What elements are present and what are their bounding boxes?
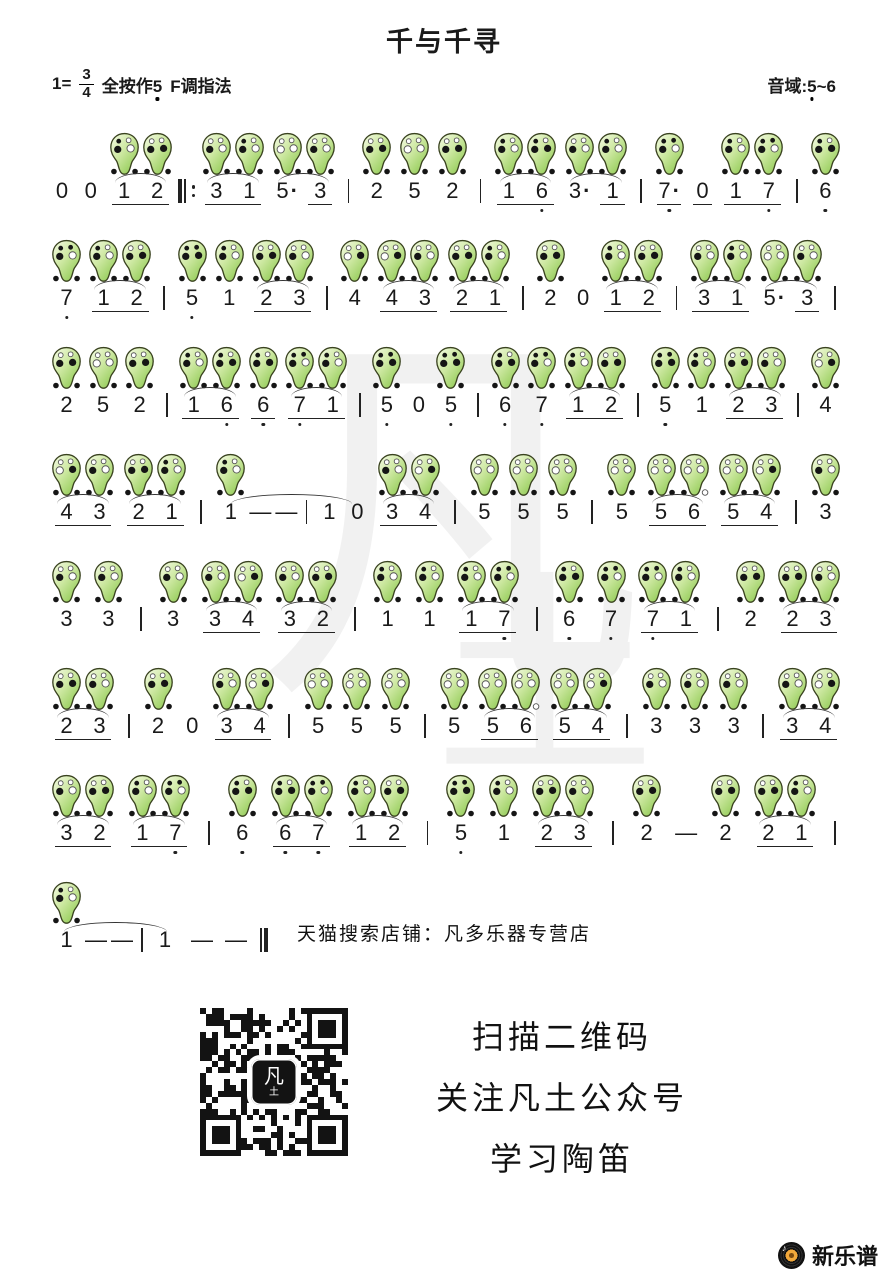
 — [260, 928, 262, 952]
ocarina-icon — [776, 667, 809, 712]
note: 3 — [408, 234, 441, 312]
note: 7· — [653, 127, 686, 205]
ocarina-icon — [126, 774, 159, 819]
barline — [135, 876, 149, 954]
barline — [194, 448, 208, 526]
 — [264, 928, 268, 952]
 — [166, 393, 168, 417]
barline — [669, 234, 683, 312]
ocarina-icon — [50, 239, 83, 284]
note: 5 — [468, 448, 501, 526]
underline — [182, 418, 239, 419]
note-group: 23 — [722, 341, 788, 419]
rest: 0 — [180, 662, 204, 740]
 — [669, 557, 702, 605]
 — [348, 605, 362, 633]
 — [157, 284, 171, 312]
underline — [349, 846, 406, 847]
note: 2 — [123, 341, 156, 419]
ocarina-icon — [563, 132, 596, 177]
qr-code: 凡 土 — [200, 1008, 348, 1156]
ocarina-icon — [378, 774, 411, 819]
note: 7 — [525, 341, 558, 419]
score-row: 333343211176771223 — [50, 555, 842, 633]
score-row: 0012315·3252163·17·0176 — [50, 127, 842, 205]
ocarina-icon — [476, 667, 509, 712]
 — [785, 771, 818, 819]
note: 2 — [250, 234, 283, 312]
note: 3 — [200, 127, 233, 205]
 — [507, 450, 540, 498]
 — [525, 129, 558, 177]
ocarina-icon — [534, 239, 567, 284]
barline — [789, 448, 803, 526]
note-number: 1 — [213, 284, 245, 312]
note: 2 — [632, 234, 665, 312]
 — [525, 343, 558, 391]
underline — [288, 418, 345, 419]
note: 5 — [340, 662, 373, 740]
barline — [631, 341, 645, 419]
note-number: 3 — [92, 605, 124, 633]
 — [304, 129, 337, 177]
 — [283, 236, 316, 284]
note: 6 — [210, 341, 243, 419]
ocarina-icon — [785, 774, 818, 819]
 — [199, 557, 232, 605]
ocarina-icon — [87, 239, 120, 284]
 — [834, 286, 836, 310]
 — [271, 129, 304, 177]
 — [427, 821, 429, 845]
 — [163, 286, 165, 310]
ocarina-icon — [487, 774, 520, 819]
note: 4 — [581, 662, 614, 740]
barline — [348, 555, 362, 633]
ocarina-icon — [269, 774, 302, 819]
 — [50, 878, 83, 926]
ocarina-icon — [213, 239, 246, 284]
note: 1 — [719, 127, 752, 205]
 — [226, 771, 259, 819]
 — [468, 450, 501, 498]
barline — [157, 234, 171, 312]
barline — [606, 769, 620, 847]
note-number: 5 — [445, 819, 477, 847]
note-group: 31 — [200, 127, 266, 205]
qr-section: 凡 土 扫描二维码 关注凡土公众号 学习陶笛 — [0, 1008, 888, 1180]
note-number: 5 — [547, 498, 579, 526]
note: 2 — [360, 127, 393, 205]
qr-center-logo: 凡 土 — [251, 1059, 297, 1105]
note-number: 5 — [302, 712, 334, 740]
 — [797, 393, 799, 417]
note: 4 — [338, 234, 371, 312]
time-signature: 34 — [79, 67, 93, 101]
 — [421, 819, 435, 847]
note: 2 — [378, 769, 411, 847]
ocarina-icon — [468, 453, 501, 498]
note: 2 — [534, 234, 567, 312]
barline — [634, 127, 648, 205]
 — [834, 821, 836, 845]
ocarina-icon — [581, 667, 614, 712]
barline — [421, 769, 435, 847]
note-group: 23 — [530, 769, 596, 847]
 — [163, 286, 165, 310]
ocarina-icon — [142, 667, 175, 712]
note-group: 12 — [599, 234, 665, 312]
note: 2 — [776, 555, 809, 633]
underline — [649, 525, 706, 526]
ocarina-icon — [525, 132, 558, 177]
note: 1 — [345, 769, 378, 847]
underline — [215, 739, 272, 740]
barline — [711, 555, 725, 633]
note: 1 — [149, 876, 181, 954]
note-number: 3 — [679, 712, 711, 740]
 — [758, 236, 791, 284]
note-group: 3·1 — [563, 127, 629, 205]
ocarina-icon — [595, 346, 628, 391]
 — [762, 714, 764, 738]
barline — [134, 555, 148, 633]
ocarina-icon — [548, 667, 581, 712]
underline — [112, 204, 169, 205]
 — [208, 821, 210, 845]
barline — [418, 662, 432, 740]
note: 2 — [142, 662, 175, 740]
note-number: 6 — [809, 177, 841, 205]
 — [436, 129, 469, 177]
 — [123, 343, 156, 391]
note-group: 43 — [50, 448, 116, 526]
note: 5 — [444, 769, 477, 847]
 — [585, 498, 599, 526]
rest: 0 — [79, 127, 103, 205]
 — [796, 179, 798, 203]
 — [719, 129, 752, 177]
 — [326, 286, 328, 310]
barline — [516, 234, 530, 312]
 — [752, 771, 785, 819]
ocarina-icon — [492, 132, 525, 177]
ocarina-icon — [636, 560, 669, 605]
 — [448, 498, 462, 526]
underline — [273, 846, 330, 847]
 — [359, 393, 361, 417]
note: 1 — [455, 555, 488, 633]
ocarina-icon — [243, 667, 276, 712]
note: 3 — [199, 555, 232, 633]
barline — [320, 234, 334, 312]
 — [359, 393, 361, 417]
ocarina-icon — [50, 881, 83, 926]
dash-note: — — [223, 876, 249, 954]
ocarina-icon — [717, 453, 750, 498]
note: 2 — [83, 769, 116, 847]
note-group: 32 — [273, 555, 339, 633]
 — [722, 343, 755, 391]
 — [50, 557, 83, 605]
note-number: 5 — [507, 498, 539, 526]
ocarina-icon — [371, 560, 404, 605]
: — — [223, 926, 249, 954]
ocarina-icon — [50, 560, 83, 605]
note: 3 — [776, 662, 809, 740]
note-number: 1 — [488, 819, 520, 847]
 — [688, 236, 721, 284]
note: 3 — [376, 448, 409, 526]
note-number: 7 — [595, 605, 627, 633]
ocarina-icon — [563, 774, 596, 819]
 — [477, 393, 479, 417]
 — [50, 664, 83, 712]
underline — [55, 739, 112, 740]
ocarina-icon — [302, 667, 335, 712]
 — [50, 343, 83, 391]
 — [140, 607, 142, 631]
 — [522, 286, 524, 310]
note: 4 — [243, 662, 276, 740]
note: 2 — [722, 341, 755, 419]
note: 5 — [546, 448, 579, 526]
 — [348, 179, 350, 203]
 — [260, 928, 268, 952]
ocarina-icon — [199, 560, 232, 605]
ocarina-icon — [123, 346, 156, 391]
note-number: 7· — [653, 177, 685, 205]
underline — [254, 311, 311, 312]
note: 1 — [785, 769, 818, 847]
note: 7 — [159, 769, 192, 847]
ocarina-icon — [306, 560, 339, 605]
qr-caption-line: 关注凡土公众号 — [436, 1073, 688, 1119]
note-number: 5 — [371, 391, 403, 419]
 — [562, 343, 595, 391]
 — [591, 500, 593, 524]
note-number: 3 — [718, 712, 750, 740]
ocarina-icon — [809, 560, 842, 605]
 — [194, 498, 208, 526]
ocarina-icon — [316, 346, 349, 391]
note: 1 — [126, 769, 159, 847]
barline — [828, 234, 842, 312]
note: 5 — [507, 448, 540, 526]
note-number: 5 — [341, 712, 373, 740]
 — [636, 557, 669, 605]
note-number: 2 — [735, 605, 767, 633]
rest: 0 — [571, 234, 595, 312]
ocarina-icon — [87, 346, 120, 391]
 — [492, 129, 525, 177]
ocarina-icon — [685, 346, 718, 391]
rest: 0 — [50, 127, 74, 205]
ocarina-icon — [50, 346, 83, 391]
ocarina-icon — [177, 346, 210, 391]
 — [755, 343, 788, 391]
note-group: 54 — [717, 448, 783, 526]
note-group: 23 — [50, 662, 116, 740]
 — [376, 450, 409, 498]
 — [717, 607, 719, 631]
note-number: 3 — [157, 605, 189, 633]
 — [522, 286, 524, 310]
 — [160, 391, 174, 419]
note-group: 21 — [446, 234, 512, 312]
ocarina-icon — [719, 132, 752, 177]
underline — [131, 846, 188, 847]
 — [288, 714, 290, 738]
 — [474, 177, 488, 205]
 — [653, 129, 686, 177]
note-group: 23 — [776, 555, 842, 633]
note: 3 — [50, 555, 83, 633]
score-row: 43211——1034555556543 — [50, 448, 842, 526]
note-group: 17 — [455, 555, 521, 633]
 — [348, 179, 350, 203]
 — [626, 714, 628, 738]
note-group: 12 — [562, 341, 628, 419]
 — [320, 284, 334, 312]
 — [379, 664, 412, 712]
 — [184, 179, 186, 203]
note-group: 12 — [87, 234, 153, 312]
note-group: 17 — [719, 127, 785, 205]
 — [210, 664, 243, 712]
score-row: 2320345555565433334 — [50, 662, 842, 740]
note: 4 — [750, 448, 783, 526]
note-group: 56 — [645, 448, 711, 526]
barline — [791, 341, 805, 419]
note: 3 — [640, 662, 673, 740]
note: 6 — [678, 448, 711, 526]
 — [834, 286, 836, 310]
ocarina-icon — [155, 453, 188, 498]
note: 6 — [269, 769, 302, 847]
 — [606, 819, 620, 847]
 — [640, 179, 642, 203]
ocarina-icon — [360, 132, 393, 177]
note-number: 2 — [142, 712, 174, 740]
note: 2 — [436, 127, 469, 205]
music-note-icon: ♪ — [782, 1243, 787, 1253]
barline — [448, 448, 462, 526]
 — [122, 450, 155, 498]
note: 2 — [141, 127, 174, 205]
 — [487, 771, 520, 819]
underline — [566, 418, 623, 419]
note: 6 — [553, 555, 586, 633]
underline — [380, 525, 437, 526]
 — [476, 664, 509, 712]
note-number: 0 — [691, 177, 715, 205]
note-group: 1——1 — [50, 876, 181, 954]
ocarina-icon — [271, 132, 304, 177]
ocarina-icon — [752, 132, 785, 177]
note: 5 — [176, 234, 209, 312]
 — [200, 500, 202, 524]
ocarina-icon — [233, 132, 266, 177]
 — [795, 500, 797, 524]
note: 3 — [273, 555, 306, 633]
note: 5 — [434, 341, 467, 419]
note: 1 — [479, 234, 512, 312]
note: 4 — [409, 448, 442, 526]
 — [809, 129, 842, 177]
 — [302, 664, 335, 712]
ocarina-icon — [605, 453, 638, 498]
note: 3 — [809, 555, 842, 633]
 — [595, 557, 628, 605]
 — [581, 664, 614, 712]
ocarina-icon — [83, 453, 116, 498]
 — [370, 343, 403, 391]
dash-note: — — [673, 769, 699, 847]
ocarina-icon — [214, 453, 247, 498]
note-number: 6 — [553, 605, 585, 633]
note: 7 — [302, 769, 335, 847]
barline — [530, 555, 544, 633]
note: 3 — [678, 662, 711, 740]
note: 5 — [398, 127, 431, 205]
 — [596, 129, 629, 177]
page-title: 千与千寻 — [0, 20, 888, 59]
ocarina-icon — [596, 132, 629, 177]
underline — [459, 632, 516, 633]
note-number: 2 — [51, 391, 83, 419]
barline — [282, 662, 296, 740]
barline — [353, 341, 367, 419]
 — [50, 450, 83, 498]
 — [288, 714, 290, 738]
 — [834, 821, 836, 845]
note-number: 5 — [438, 712, 470, 740]
 — [126, 771, 159, 819]
ocarina-icon — [250, 239, 283, 284]
key-signature: 1= 34 全按作5 F调指法 — [52, 67, 232, 101]
 — [208, 821, 210, 845]
 — [591, 500, 593, 524]
note: 2 — [709, 769, 742, 847]
 — [637, 393, 639, 417]
 — [413, 557, 446, 605]
 — [637, 393, 639, 417]
 — [257, 926, 271, 954]
note: 5 — [645, 448, 678, 526]
underline — [604, 311, 661, 312]
note: 2 — [752, 769, 785, 847]
note: 2 — [50, 662, 83, 740]
ocarina-icon — [438, 667, 471, 712]
note: 7 — [488, 555, 521, 633]
note-group: 34 — [776, 662, 842, 740]
 — [250, 236, 283, 284]
note: 5 — [370, 341, 403, 419]
 — [630, 771, 663, 819]
 — [247, 343, 280, 391]
qr-caption-line: 扫描二维码 — [436, 1012, 688, 1058]
 — [438, 664, 471, 712]
 — [454, 500, 456, 524]
 — [354, 607, 356, 631]
ocarina-icon — [791, 239, 824, 284]
final-barline — [257, 876, 271, 954]
 — [536, 607, 538, 631]
ocarina-icon — [488, 560, 521, 605]
ocarina-icon — [379, 667, 412, 712]
ocarina-icon — [92, 560, 125, 605]
